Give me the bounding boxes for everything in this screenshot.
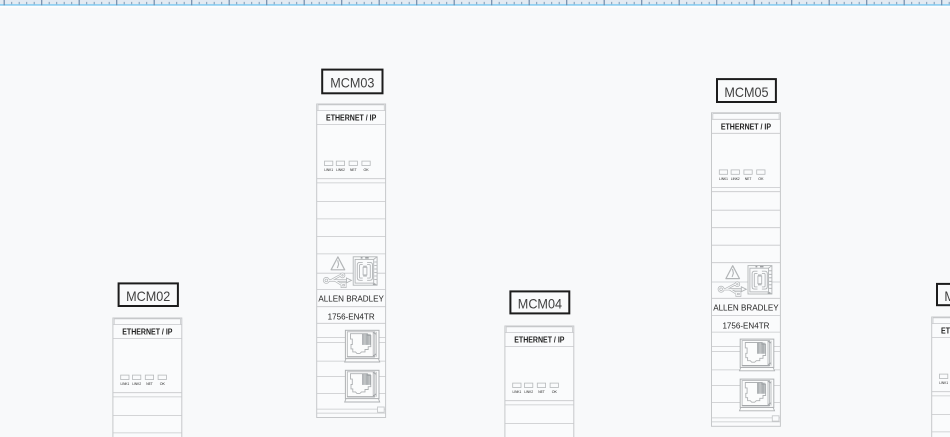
svg-text:MCM04: MCM04 bbox=[518, 296, 562, 312]
svg-text:MCM03: MCM03 bbox=[330, 75, 374, 91]
svg-text:MCM06: MCM06 bbox=[944, 288, 950, 304]
svg-text:MCM05: MCM05 bbox=[724, 84, 768, 100]
svg-text:MCM02: MCM02 bbox=[126, 288, 170, 304]
